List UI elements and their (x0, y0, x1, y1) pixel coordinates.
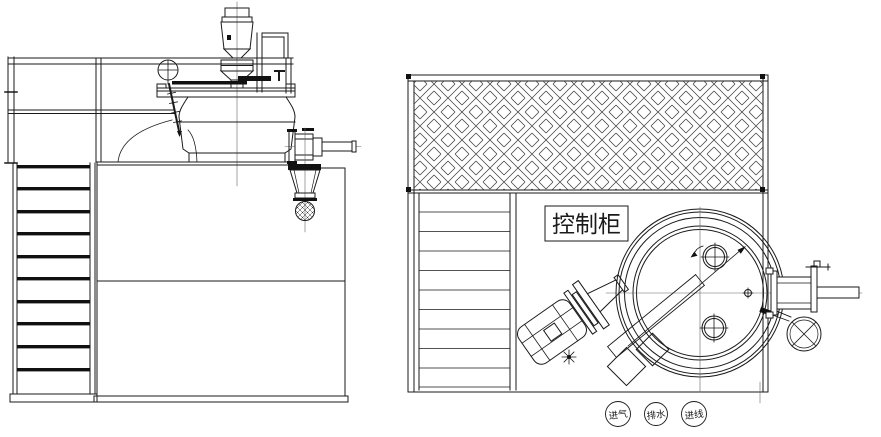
sight-port-lower (700, 314, 728, 342)
utility-tag-air-inlet: 进气 (606, 402, 631, 427)
platform-hatch (406, 74, 768, 193)
utility-tag-wiring-inlet: 进线 (682, 402, 707, 427)
technical-drawing: 控制柜 (0, 0, 881, 437)
platform-railing (5, 57, 293, 163)
vessel-plan (606, 207, 862, 392)
chopper-elements (607, 333, 668, 385)
side-elevation-view (5, 2, 361, 402)
plan-ladder (414, 193, 516, 390)
control-cabinet-label: 控制柜 (545, 206, 628, 241)
discharge-assembly-side (285, 128, 361, 232)
plan-view: 控制柜 (406, 74, 862, 427)
utility-tag-text: 进线 (684, 408, 705, 423)
utility-tag-text: 进气 (608, 408, 629, 423)
feeder-assembly (221, 8, 284, 88)
feed-pipe (257, 33, 288, 92)
handwheel-gauge (158, 60, 247, 137)
drawing-canvas: 控制柜 (0, 0, 881, 437)
center-star-mark (562, 350, 576, 364)
discharge-assembly-plan (759, 261, 859, 351)
side-ladder (10, 163, 97, 402)
utility-tags: 进气 排水 进线 (606, 402, 707, 427)
control-cabinet-text: 控制柜 (552, 212, 621, 238)
utility-tag-text: 排水 (646, 408, 667, 423)
utility-tag-drain: 排水 (645, 403, 668, 426)
sight-port-upper (701, 243, 729, 271)
vessel-bowl (118, 84, 295, 162)
